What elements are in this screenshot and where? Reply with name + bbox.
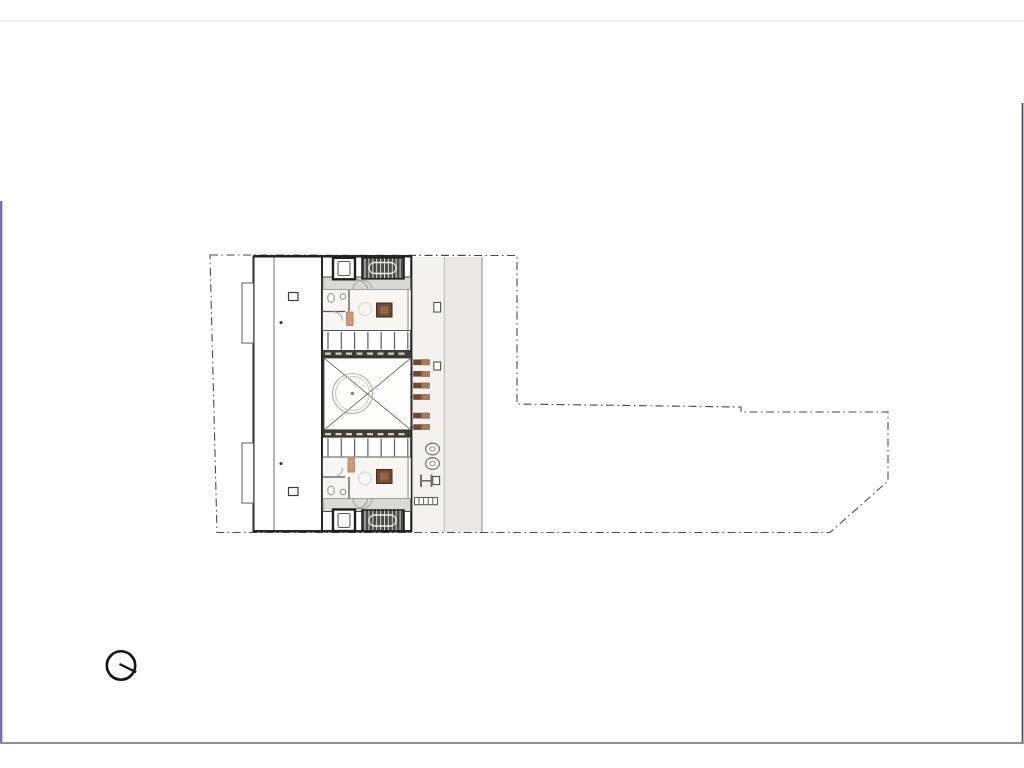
wall-tab-upper — [289, 293, 299, 301]
deck-fixture-middle — [434, 362, 441, 370]
elevator-car-lower — [338, 514, 350, 528]
stair-block-upper — [362, 258, 404, 279]
tree-trunk-dot — [351, 392, 355, 396]
drawing-sheet — [0, 0, 1024, 768]
column-dot-lower — [279, 462, 282, 465]
lounger-4-cushion — [422, 394, 430, 400]
deck-stool-1 — [426, 443, 440, 455]
property-boundary — [210, 255, 888, 533]
lounger-2-cushion — [422, 371, 430, 377]
planter-lower — [242, 443, 254, 503]
wall-tab-lower — [289, 488, 299, 496]
lounger-5-cushion — [422, 413, 430, 419]
unit-floor-upper — [323, 290, 411, 331]
planter-upper — [242, 283, 254, 343]
lounger-3-cushion — [422, 383, 430, 389]
deck-steps — [415, 498, 438, 505]
deck-fixture-lower — [433, 477, 440, 485]
deck-walkway — [443, 257, 482, 532]
deck-fixture-upper — [434, 303, 441, 313]
toilet-upper — [328, 294, 334, 303]
toilet-lower — [328, 486, 334, 495]
table-lower-top — [380, 473, 389, 481]
sink-upper — [340, 294, 346, 300]
sink-lower — [340, 489, 346, 495]
elevator-car-upper — [338, 262, 350, 276]
unit-floor-lower — [323, 458, 411, 499]
corridor-lower-dividers — [328, 439, 408, 457]
deck-stool-2 — [426, 458, 440, 470]
floor-plan-canvas — [0, 0, 1024, 768]
table-upper-top — [380, 306, 389, 314]
stair-block-lower — [362, 510, 404, 531]
lounger-6-cushion — [422, 424, 430, 430]
closet-accent-upper — [347, 312, 354, 326]
lounger-dot-2 — [410, 396, 412, 398]
lounger-dot-3 — [410, 426, 412, 428]
column-dot-upper — [279, 321, 282, 324]
corridor-upper-dividers — [328, 332, 408, 350]
lounger-dot-1 — [410, 373, 412, 375]
closet-accent-lower — [348, 459, 355, 473]
lounger-1-cushion — [422, 360, 430, 366]
